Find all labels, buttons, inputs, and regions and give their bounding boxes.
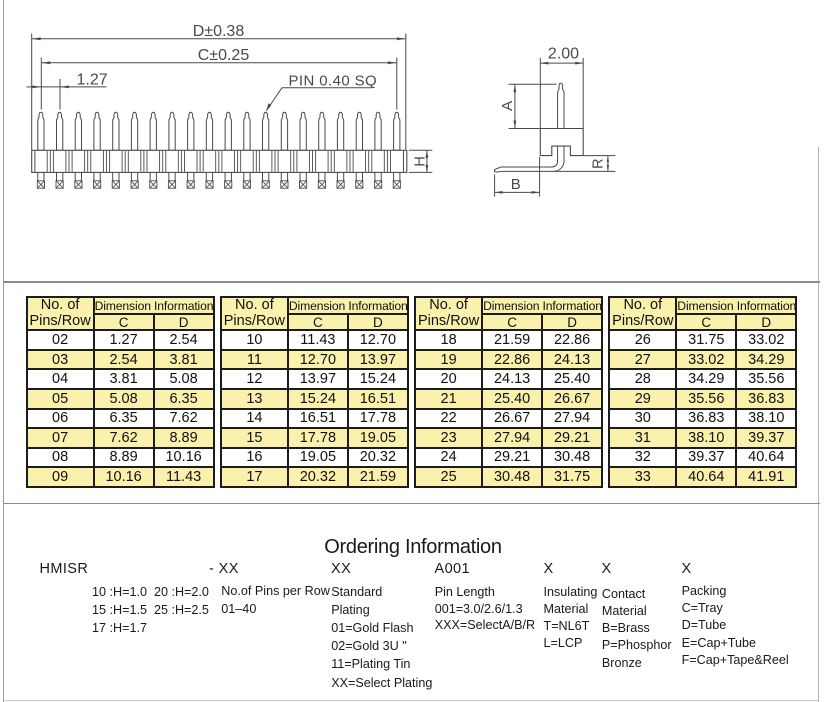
svg-text:A: A (499, 101, 516, 111)
svg-text:D±0.38: D±0.38 (193, 23, 245, 40)
svg-text:B: B (511, 176, 521, 193)
svg-text:2.00: 2.00 (548, 45, 579, 62)
svg-text:R: R (591, 158, 607, 168)
svg-text:PIN 0.40 SQ: PIN 0.40 SQ (289, 73, 378, 90)
svg-text:C±0.25: C±0.25 (198, 47, 250, 64)
svg-text:1.27: 1.27 (77, 71, 108, 88)
svg-text:H: H (413, 156, 429, 166)
